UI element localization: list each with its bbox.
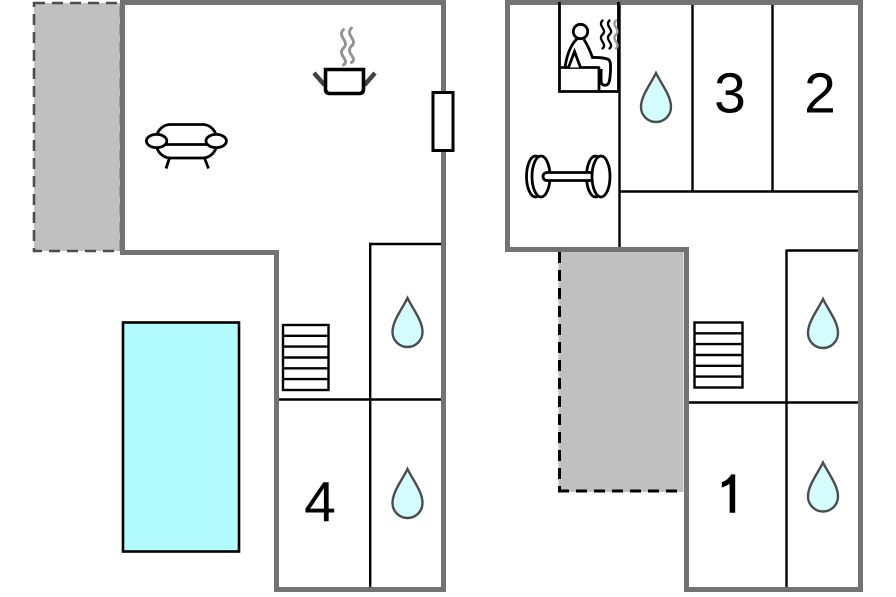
svg-text:2: 2 — [804, 61, 836, 125]
svg-text:4: 4 — [304, 471, 336, 535]
svg-text:3: 3 — [714, 61, 746, 125]
